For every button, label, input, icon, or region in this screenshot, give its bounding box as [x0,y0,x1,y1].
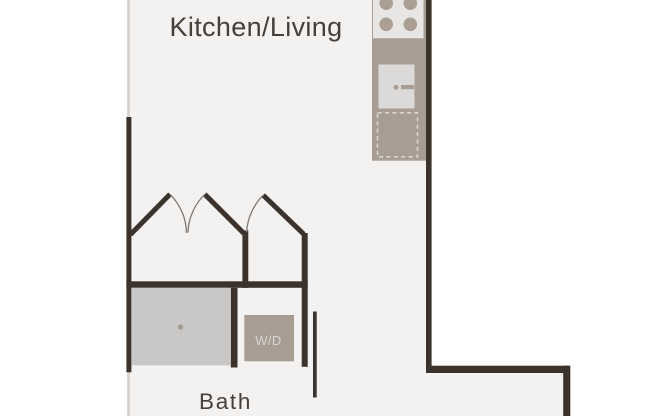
svg-text:W/D: W/D [255,333,281,348]
svg-text:Kitchen/Living: Kitchen/Living [170,12,343,42]
svg-text:Bath: Bath [199,389,252,414]
